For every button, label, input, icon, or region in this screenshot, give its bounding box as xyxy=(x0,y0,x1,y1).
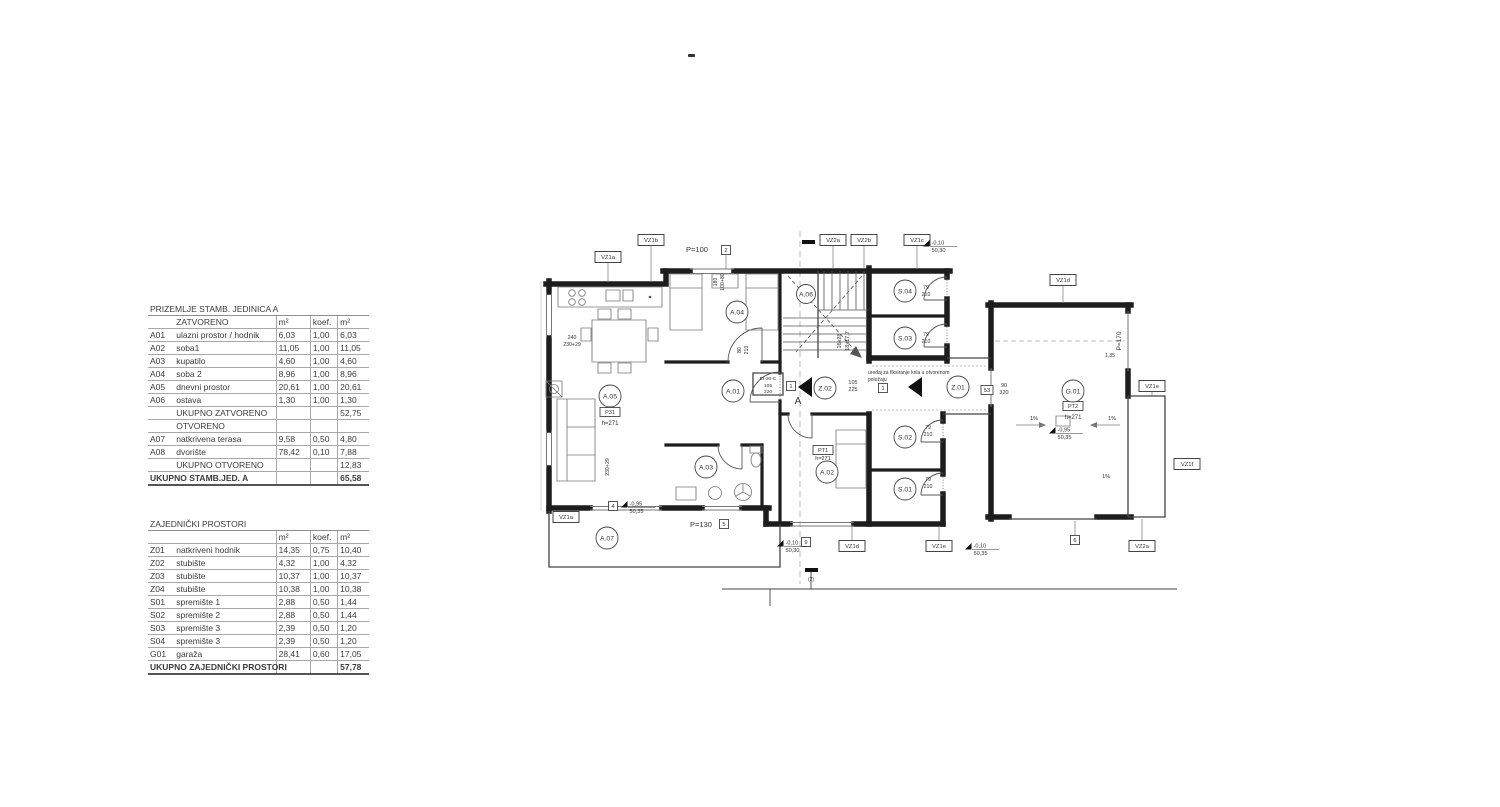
note-text: 105 xyxy=(848,380,857,386)
cell-area xyxy=(276,407,310,420)
cell-code: A04 xyxy=(148,368,174,381)
cell-koef xyxy=(310,472,337,486)
cell-area: 6,03 xyxy=(276,329,310,342)
room-label: Z.01 xyxy=(951,384,965,391)
note-text: P=100 xyxy=(686,245,708,254)
cell-koef xyxy=(310,661,337,675)
vz-tag-label: VZ2b xyxy=(857,238,871,244)
note-text: 225 xyxy=(848,387,857,393)
cell-name: spremište 3 xyxy=(174,622,276,635)
note-text: h=271 xyxy=(602,421,620,427)
note-text: P=130 xyxy=(690,520,712,529)
cell-total: 57,78 xyxy=(338,661,369,675)
elevation-value: -0,10 xyxy=(786,541,799,547)
note-text: 90 xyxy=(1001,383,1007,389)
cell-area: 14,35 xyxy=(276,544,310,557)
table-row: A06 ostava 1,30 1,00 1,30 xyxy=(148,394,369,407)
cell-code: Z04 xyxy=(148,583,174,596)
table-row: UKUPNO ZATVORENO 52,75 xyxy=(148,407,369,420)
cell-name: stubište xyxy=(174,570,276,583)
cell-area xyxy=(276,420,310,433)
note-text: 79 xyxy=(925,477,931,483)
cell-koef: 0,10 xyxy=(310,446,337,459)
cell-area xyxy=(276,472,310,486)
cell-koef: 0,50 xyxy=(310,635,337,648)
ref-num-label: 6 xyxy=(1073,538,1076,544)
cell-area: 10,37 xyxy=(276,570,310,583)
note-text: 79 xyxy=(923,332,929,338)
elevation-datum: 50,30 xyxy=(786,548,800,554)
cell-koef: 1,00 xyxy=(310,583,337,596)
table-row: A02 soba1 11,05 1,00 11,05 xyxy=(148,342,369,355)
vz-tag-label: VZ1a xyxy=(601,255,616,261)
scanned-floor-plan-page: { "colors": {"ink": "#1d1d1d", "thin_lin… xyxy=(0,0,1500,807)
room-label: S.04 xyxy=(898,288,912,295)
elevation-flag xyxy=(1049,427,1056,434)
cell-area: 1,30 xyxy=(276,394,310,407)
bed xyxy=(746,274,778,330)
note-text: 210 xyxy=(744,346,750,355)
common-rows: Z01 natkriveni hodnik 14,35 0,75 10,40 Z… xyxy=(148,544,369,675)
cell-name: kupatilo xyxy=(174,355,276,368)
ref-num-label: 5 xyxy=(722,522,725,528)
cell-code: G01 xyxy=(148,648,174,661)
cell-code xyxy=(148,459,174,472)
floor-plan: VZ1aVZ1bVZ2aVZ2bVZ1cVZ1dVZ1eVZ1fVZ1aVZ1d… xyxy=(530,225,1210,615)
vz-tag-label: VZ1a xyxy=(559,515,574,521)
table-header-row: ZATVORENO m² koef. m² xyxy=(148,316,369,329)
room-label: Z.02 xyxy=(818,385,832,392)
table-title: PRIZEMLJE STAMB. JEDINICA A xyxy=(148,303,369,316)
table-title-row: ZAJEDNIČKI PROSTORI xyxy=(148,518,369,531)
cell-code: Z01 xyxy=(148,544,174,557)
table-row: S03 spremište 3 2,39 0,50 1,20 xyxy=(148,622,369,635)
cell-name: soba 2 xyxy=(174,368,276,381)
cell-name: ostava xyxy=(174,394,276,407)
cell-area: 2,88 xyxy=(276,609,310,622)
stove-burner xyxy=(579,290,586,297)
cell-total: 8,96 xyxy=(338,368,369,381)
note-text: 18x17,7 xyxy=(845,331,851,351)
cell-area: 28,41 xyxy=(276,648,310,661)
room-label: A.06 xyxy=(799,291,813,298)
note-text: P=170 xyxy=(1116,331,1123,350)
dining-chairs xyxy=(581,309,658,373)
scan-speck xyxy=(688,54,695,57)
table-row: S04 spremište 3 2,39 0,50 1,20 xyxy=(148,635,369,648)
note-text: 210 xyxy=(924,484,933,490)
cell-total: 1,44 xyxy=(338,596,369,609)
vz-tag-label: VZ1b xyxy=(644,238,658,244)
cell-code: A06 xyxy=(148,394,174,407)
area-table-common: ZAJEDNIČKI PROSTORI m² koef. m² Z01 natk… xyxy=(148,518,369,675)
cell-area: 2,39 xyxy=(276,635,310,648)
note-text: 1% xyxy=(1102,474,1110,480)
elevation-datum: 50,35 xyxy=(974,551,988,557)
header-cell xyxy=(148,316,174,329)
note-text: 79 xyxy=(923,285,929,291)
cell-area: 2,39 xyxy=(276,622,310,635)
cell-name: dnevni prostor xyxy=(174,381,276,394)
table-row: Z04 stubište 10,38 1,00 10,38 xyxy=(148,583,369,596)
vz-tag-label: VZ1d xyxy=(1056,278,1070,284)
room-label: G.01 xyxy=(1066,388,1081,395)
cell-code: A07 xyxy=(148,433,174,446)
stairs xyxy=(783,271,869,358)
cell-area: 11,05 xyxy=(276,342,310,355)
note-text: 210 xyxy=(924,432,933,438)
cell-total: 10,38 xyxy=(338,583,369,596)
cell-total: 52,75 xyxy=(338,407,369,420)
table-row: Z02 stubište 4,32 1,00 4,32 xyxy=(148,557,369,570)
note-text: uređaj za fiksiranje krila u otvorenom xyxy=(868,370,949,376)
slope-arrow-head xyxy=(1039,422,1046,428)
note-text: 80 xyxy=(737,347,743,353)
elevation-flag xyxy=(965,543,972,550)
common-table: ZAJEDNIČKI PROSTORI m² koef. m² Z01 natk… xyxy=(148,518,369,675)
room-label: A.03 xyxy=(699,464,713,471)
cell-total: 4,80 xyxy=(338,433,369,446)
vz-tag-label: VZ2a xyxy=(826,238,841,244)
ref-num-label: 1 xyxy=(789,384,792,390)
exterior-walls xyxy=(546,268,1131,524)
cell-koef: 1,00 xyxy=(310,342,337,355)
cell-name: spremište 3 xyxy=(174,635,276,648)
note-text: 230+29 xyxy=(605,458,611,476)
wall-bar xyxy=(805,568,818,572)
cell-code: Z03 xyxy=(148,570,174,583)
header-cell: m² xyxy=(338,316,369,329)
cell-code: S04 xyxy=(148,635,174,648)
cell-koef xyxy=(310,407,337,420)
vz-tag-label: VZ1c xyxy=(910,238,924,244)
cell-name: garaža xyxy=(174,648,276,661)
header-cell: koef. xyxy=(310,531,337,544)
cell-total: 1,20 xyxy=(338,635,369,648)
note-text: (2) xyxy=(808,577,814,583)
cell-koef: 0,50 xyxy=(310,433,337,446)
cell-koef: 1,00 xyxy=(310,394,337,407)
ref-num-label: 9 xyxy=(804,540,807,546)
cell-koef: 0,50 xyxy=(310,622,337,635)
cell-koef: 1,00 xyxy=(310,570,337,583)
table-row: A01 ulazni prostor / hodnik 6,03 1,00 6,… xyxy=(148,329,369,342)
elevation-value: -0,95 xyxy=(1058,428,1071,434)
header-cell xyxy=(148,531,174,544)
section-a-triangle xyxy=(908,377,922,397)
stove-burner xyxy=(579,299,586,306)
vz-tag-label: VZ2a xyxy=(1135,544,1150,550)
note-text: 240 xyxy=(568,335,577,341)
cell-name: natkrivena terasa xyxy=(174,433,276,446)
note-text: 320 xyxy=(999,390,1008,396)
bath-sink xyxy=(676,487,696,500)
cell-name: spremište 2 xyxy=(174,609,276,622)
wall-bar xyxy=(802,240,815,244)
ref-num-label: 53 xyxy=(984,388,990,394)
cell-total: 11,05 xyxy=(338,342,369,355)
cell-koef: 1,00 xyxy=(310,329,337,342)
cell-area: 20,61 xyxy=(276,381,310,394)
room-label: A.04 xyxy=(730,309,744,316)
area-table-unit-a: PRIZEMLJE STAMB. JEDINICA A ZATVORENO m²… xyxy=(148,303,369,486)
dining-table xyxy=(592,320,646,362)
note-text: 210 xyxy=(922,292,931,298)
note-text: 100+80 xyxy=(720,273,726,291)
cell-code: S03 xyxy=(148,622,174,635)
table-row: UKUPNO ZAJEDNIČKI PROSTORI 57,78 xyxy=(148,661,369,675)
ref-num-label: 2 xyxy=(724,248,727,254)
header-cell: m² xyxy=(338,531,369,544)
cell-total: 4,32 xyxy=(338,557,369,570)
elevation-value: -0,10 xyxy=(932,241,945,247)
note-text: 16x28 xyxy=(837,334,843,349)
cell-code: A03 xyxy=(148,355,174,368)
cell-total: 17,05 xyxy=(338,648,369,661)
stove-burner xyxy=(569,299,576,306)
note-text: 180 xyxy=(713,278,719,287)
note-text: EI-30-C xyxy=(760,376,777,382)
cell-code: Z02 xyxy=(148,557,174,570)
panel-tag-label: P31 xyxy=(605,410,615,416)
cell-total: 1,30 xyxy=(338,394,369,407)
note-text: 220 xyxy=(764,389,772,395)
elevation-value: -0,10 xyxy=(974,544,987,550)
table-row: G01 garaža 28,41 0,60 17,05 xyxy=(148,648,369,661)
table-row: OTVORENO xyxy=(148,420,369,433)
room-label: A.02 xyxy=(820,469,834,476)
stove-burner xyxy=(569,290,576,297)
cell-name: soba1 xyxy=(174,342,276,355)
table-row: A07 natkrivena terasa 9,58 0,50 4,80 xyxy=(148,433,369,446)
note-text: h=271 xyxy=(1065,415,1083,421)
cell-name: OTVORENO xyxy=(174,420,276,433)
cell-total: 20,61 xyxy=(338,381,369,394)
panel-tag-label: PT1 xyxy=(818,448,828,454)
header-cell: m² xyxy=(276,531,310,544)
cell-total: 7,88 xyxy=(338,446,369,459)
vz-tag-label: VZ1e xyxy=(1145,384,1159,390)
cell-total: 12,83 xyxy=(338,459,369,472)
room-label: A.01 xyxy=(726,388,740,395)
table-row: S02 spremište 2 2,88 0,50 1,44 xyxy=(148,609,369,622)
header-cell: koef. xyxy=(310,316,337,329)
elevation-datum: 50,30 xyxy=(932,248,946,254)
table-title: ZAJEDNIČKI PROSTORI xyxy=(148,518,369,531)
cell-name: ulazni prostor / hodnik xyxy=(174,329,276,342)
cell-name: UKUPNO OTVORENO xyxy=(174,459,276,472)
cell-name: spremište 1 xyxy=(174,596,276,609)
table-row: A04 soba 2 8,96 1,00 8,96 xyxy=(148,368,369,381)
cell-name: UKUPNO ZATVORENO xyxy=(174,407,276,420)
cell-total: 4,60 xyxy=(338,355,369,368)
room-label: A.05 xyxy=(603,393,617,400)
room-label: S.01 xyxy=(898,486,912,493)
counter-dot xyxy=(649,296,652,299)
cell-koef: 0,60 xyxy=(310,648,337,661)
elevation-datum: 50,35 xyxy=(630,509,644,515)
floor-plan-drawing: VZ1aVZ1bVZ2aVZ2bVZ1cVZ1dVZ1eVZ1fVZ1aVZ1d… xyxy=(530,225,1210,615)
cell-name: dvorište xyxy=(174,446,276,459)
cell-area: 78,42 xyxy=(276,446,310,459)
room-label: S.03 xyxy=(898,335,912,342)
bed xyxy=(836,430,866,488)
cell-code: UKUPNO STAMB.JED. A xyxy=(148,472,174,486)
vz-tag-label: VZ1e xyxy=(932,544,946,550)
cell-koef: 1,00 xyxy=(310,557,337,570)
cell-area: 4,60 xyxy=(276,355,310,368)
elevation-value: -0,95 xyxy=(630,502,643,508)
toilet xyxy=(750,446,762,453)
cell-code: S01 xyxy=(148,596,174,609)
cell-area: 4,32 xyxy=(276,557,310,570)
table-title-row: PRIZEMLJE STAMB. JEDINICA A xyxy=(148,303,369,316)
room-label: A.07 xyxy=(600,535,614,542)
elevation-datum: 50,35 xyxy=(1058,435,1072,441)
cell-koef xyxy=(310,459,337,472)
note-text: položaju xyxy=(868,377,887,383)
cell-code: A05 xyxy=(148,381,174,394)
bed xyxy=(670,274,702,330)
cell-area: 10,38 xyxy=(276,583,310,596)
cell-koef: 1,00 xyxy=(310,381,337,394)
cell-total: 10,40 xyxy=(338,544,369,557)
cell-code: A08 xyxy=(148,446,174,459)
table-row: A08 dvorište 78,42 0,10 7,88 xyxy=(148,446,369,459)
cell-koef: 1,00 xyxy=(310,368,337,381)
cell-code xyxy=(148,420,174,433)
panel-tag-label: PT2 xyxy=(1068,404,1078,410)
cell-area: 8,96 xyxy=(276,368,310,381)
slope-arrow-head xyxy=(1090,422,1097,428)
note-text: h=271 xyxy=(815,456,830,462)
cell-code: A01 xyxy=(148,329,174,342)
cell-total: 10,37 xyxy=(338,570,369,583)
table-row: A03 kupatilo 4,60 1,00 4,60 xyxy=(148,355,369,368)
cell-koef xyxy=(310,420,337,433)
ref-num-label: 1 xyxy=(881,386,884,392)
note-text: 210 xyxy=(922,339,931,345)
note-text: 105 xyxy=(764,383,772,389)
table-row: S01 spremište 1 2,88 0,50 1,44 xyxy=(148,596,369,609)
cell-area: 9,58 xyxy=(276,433,310,446)
note-text: 79 xyxy=(925,425,931,431)
toilet-bowl xyxy=(751,453,761,467)
cell-total xyxy=(338,420,369,433)
vz-tag-label: VZ1f xyxy=(1181,462,1194,468)
table-row: A05 dnevni prostor 20,61 1,00 20,61 xyxy=(148,381,369,394)
table-row: Z03 stubište 10,37 1,00 10,37 xyxy=(148,570,369,583)
sofa xyxy=(557,399,595,481)
table-header-row: m² koef. m² xyxy=(148,531,369,544)
cell-code: A02 xyxy=(148,342,174,355)
vz-tag-label: VZ1d xyxy=(845,544,859,550)
cell-koef: 0,75 xyxy=(310,544,337,557)
header-cell xyxy=(174,531,276,544)
table-row: UKUPNO STAMB.JED. A 65,58 xyxy=(148,472,369,486)
table-row: UKUPNO OTVORENO 12,83 xyxy=(148,459,369,472)
unit-a-table: PRIZEMLJE STAMB. JEDINICA A ZATVORENO m²… xyxy=(148,303,369,486)
cell-area xyxy=(276,459,310,472)
cell-area: 2,88 xyxy=(276,596,310,609)
table-row: Z01 natkriveni hodnik 14,35 0,75 10,40 xyxy=(148,544,369,557)
cell-code: UKUPNO ZAJEDNIČKI PROSTORI xyxy=(148,661,174,675)
cell-total: 1,44 xyxy=(338,609,369,622)
cell-code: S02 xyxy=(148,609,174,622)
unit-a-rows: A01 ulazni prostor / hodnik 6,03 1,00 6,… xyxy=(148,329,369,486)
cell-total: 65,58 xyxy=(338,472,369,486)
header-cell: ZATVORENO xyxy=(174,316,276,329)
cell-total: 1,20 xyxy=(338,622,369,635)
header-cell: m² xyxy=(276,316,310,329)
cell-name: natkriveni hodnik xyxy=(174,544,276,557)
cell-koef: 0,50 xyxy=(310,609,337,622)
cell-name: stubište xyxy=(174,557,276,570)
cell-name: stubište xyxy=(174,583,276,596)
note-text: 1% xyxy=(1108,416,1116,422)
room-label: S.02 xyxy=(898,434,912,441)
thin-walls xyxy=(549,271,1177,606)
note-text: A xyxy=(795,396,802,407)
cell-code xyxy=(148,407,174,420)
note-text: 1% xyxy=(1030,416,1038,422)
cell-koef: 1,00 xyxy=(310,355,337,368)
cell-koef: 0,50 xyxy=(310,596,337,609)
note-text: 230+29 xyxy=(563,342,581,348)
washing-machine xyxy=(709,487,722,500)
note-text: 1,35 xyxy=(1105,353,1115,359)
cell-total: 6,03 xyxy=(338,329,369,342)
